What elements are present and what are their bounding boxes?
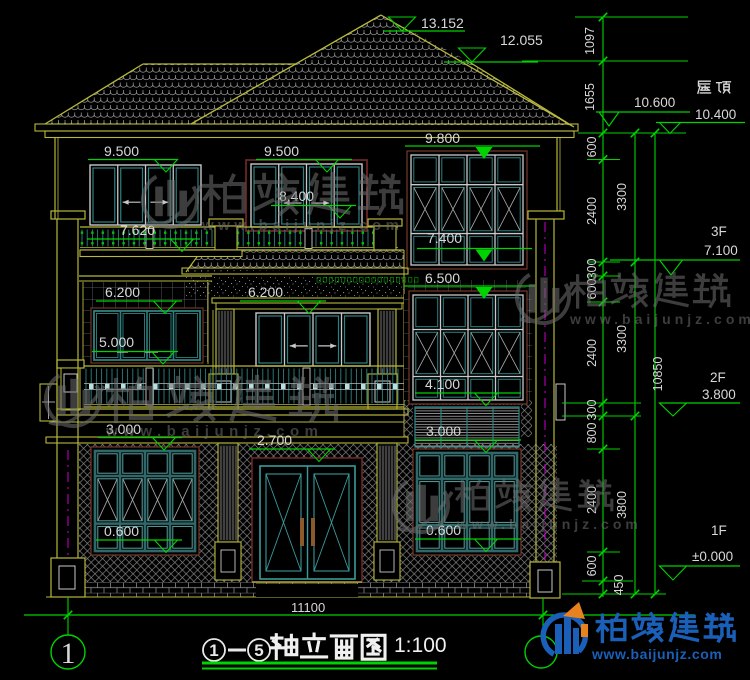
svg-text:6.200: 6.200: [248, 284, 283, 300]
svg-text:10850: 10850: [651, 357, 665, 392]
svg-text:10.400: 10.400: [695, 107, 736, 122]
svg-text:2F: 2F: [710, 370, 726, 385]
svg-text:6.200: 6.200: [105, 284, 140, 300]
svg-text:2400: 2400: [585, 339, 599, 367]
svg-text:1: 1: [61, 637, 76, 670]
svg-text:0.600: 0.600: [104, 523, 139, 539]
svg-text:1655: 1655: [583, 83, 597, 111]
svg-text:5: 5: [254, 641, 263, 660]
svg-text:600: 600: [585, 137, 599, 158]
svg-text:10.600: 10.600: [634, 95, 675, 110]
svg-text:7.400: 7.400: [427, 230, 462, 246]
svg-text:9.500: 9.500: [104, 143, 139, 159]
svg-text:13.152: 13.152: [421, 15, 464, 31]
svg-text:11100: 11100: [291, 600, 325, 615]
svg-text:1: 1: [209, 641, 218, 660]
svg-text:3F: 3F: [711, 224, 727, 239]
svg-text:3300: 3300: [615, 183, 629, 211]
svg-text:6.500: 6.500: [425, 270, 460, 286]
svg-text:3300: 3300: [615, 325, 629, 353]
svg-text:1F: 1F: [711, 523, 727, 538]
svg-text:450: 450: [612, 575, 626, 596]
svg-text:www.baijunjz.com: www.baijunjz.com: [569, 311, 750, 327]
svg-text:12.055: 12.055: [500, 32, 543, 48]
svg-text:7.100: 7.100: [704, 243, 738, 258]
svg-text:9.800: 9.800: [425, 130, 460, 146]
svg-text:±0.000: ±0.000: [692, 549, 733, 564]
svg-text:600: 600: [585, 556, 599, 577]
svg-text:2400: 2400: [585, 197, 599, 225]
svg-text:4.100: 4.100: [425, 376, 460, 392]
svg-text:3800: 3800: [615, 491, 629, 519]
svg-text:3.800: 3.800: [702, 387, 736, 402]
svg-text:1097: 1097: [583, 27, 597, 55]
svg-text:9.500: 9.500: [264, 143, 299, 159]
svg-text:www.baijunjz.com: www.baijunjz.com: [456, 516, 642, 532]
svg-text:5.000: 5.000: [99, 334, 134, 350]
svg-text:3.000: 3.000: [426, 423, 461, 439]
svg-text:www.baijunjz.com: www.baijunjz.com: [201, 217, 403, 234]
svg-text:300: 300: [585, 400, 599, 421]
svg-text:www.baijunjz.com: www.baijunjz.com: [591, 646, 722, 662]
svg-text:1:100: 1:100: [394, 634, 447, 657]
svg-text:800: 800: [585, 423, 599, 444]
svg-text:www.baijunjz.com: www.baijunjz.com: [105, 423, 323, 440]
